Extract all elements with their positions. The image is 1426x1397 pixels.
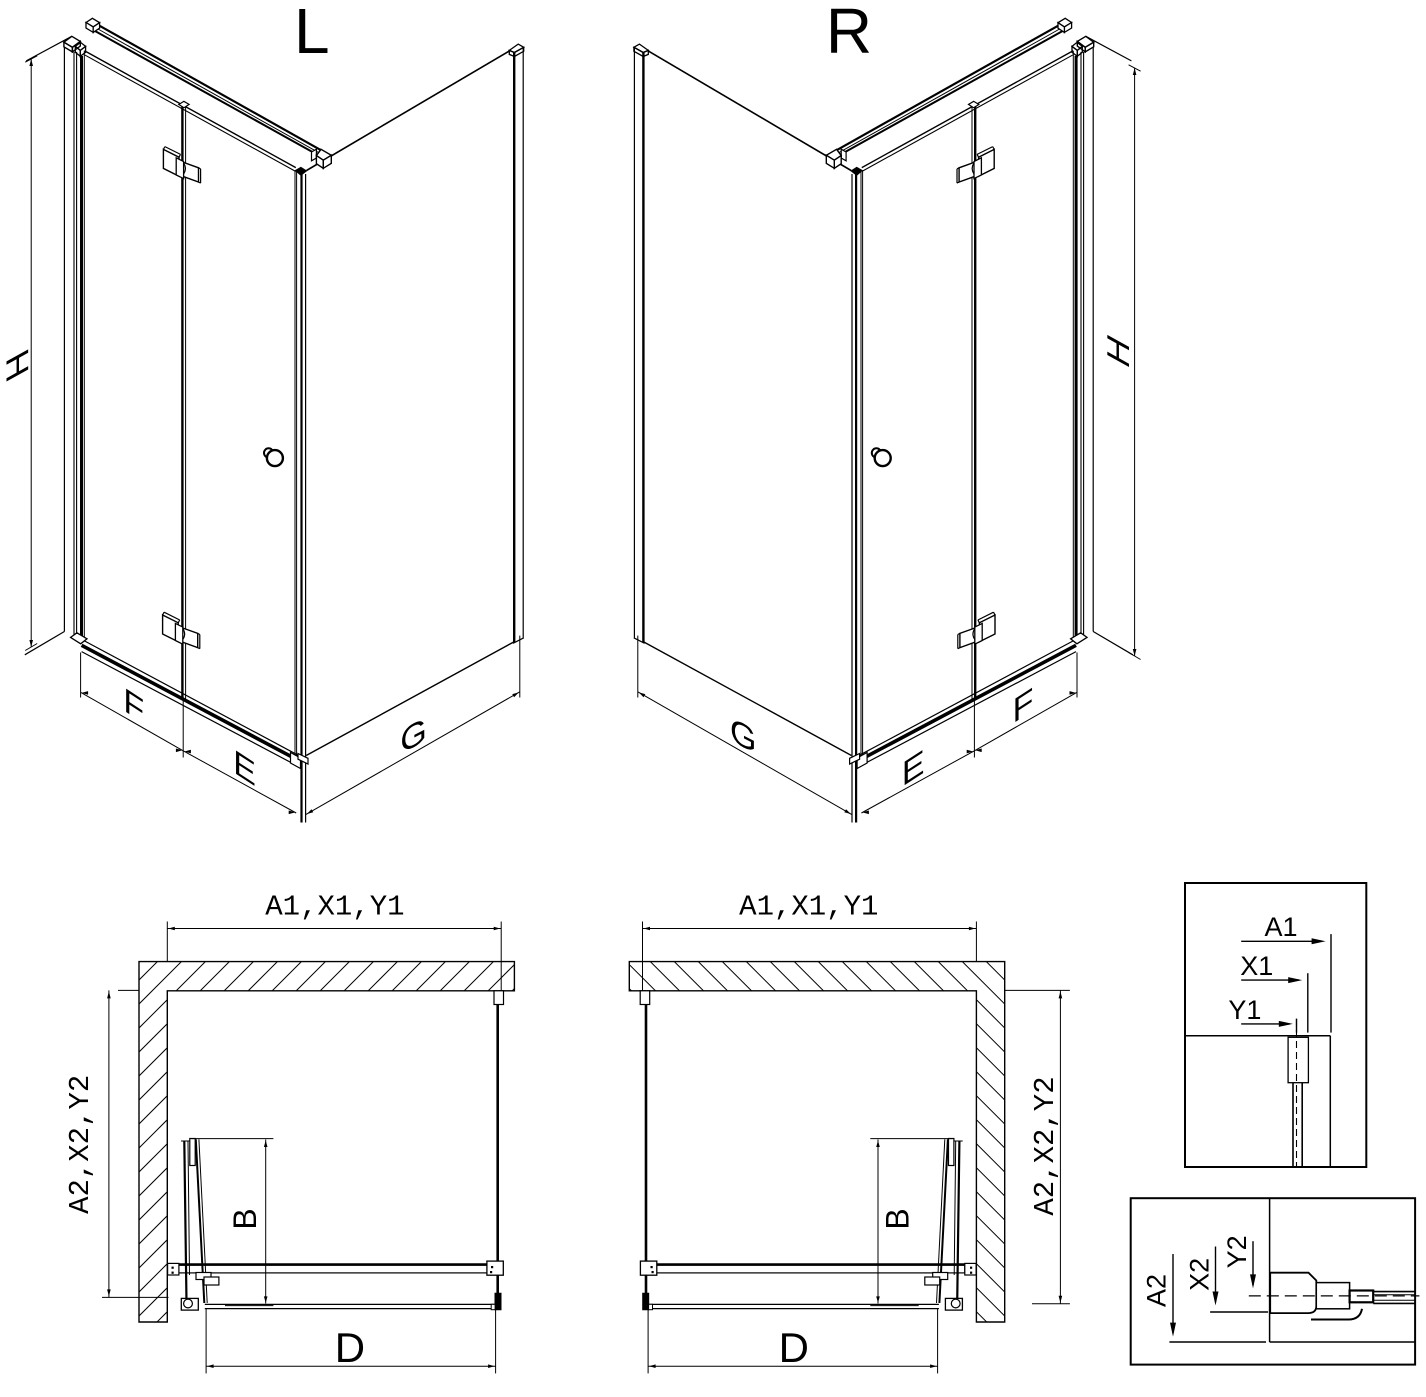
- svg-text:R: R: [826, 0, 872, 67]
- svg-text:L: L: [294, 0, 330, 67]
- svg-text:D: D: [779, 1324, 809, 1371]
- svg-text:B: B: [879, 1208, 915, 1229]
- svg-text:A2,X2,Y2: A2,X2,Y2: [1029, 1076, 1062, 1215]
- svg-text:Y1: Y1: [1228, 995, 1261, 1025]
- svg-text:D: D: [335, 1324, 365, 1371]
- svg-text:B: B: [227, 1208, 263, 1229]
- svg-text:X1: X1: [1240, 951, 1273, 981]
- svg-text:Y2: Y2: [1222, 1235, 1252, 1268]
- svg-text:X2: X2: [1184, 1258, 1214, 1291]
- svg-text:A1,X1,Y1: A1,X1,Y1: [739, 891, 878, 924]
- svg-text:A2,X2,Y2: A2,X2,Y2: [64, 1075, 97, 1214]
- svg-text:A1,X1,Y1: A1,X1,Y1: [265, 891, 404, 924]
- svg-text:A2: A2: [1142, 1274, 1172, 1307]
- svg-text:A1: A1: [1264, 912, 1297, 942]
